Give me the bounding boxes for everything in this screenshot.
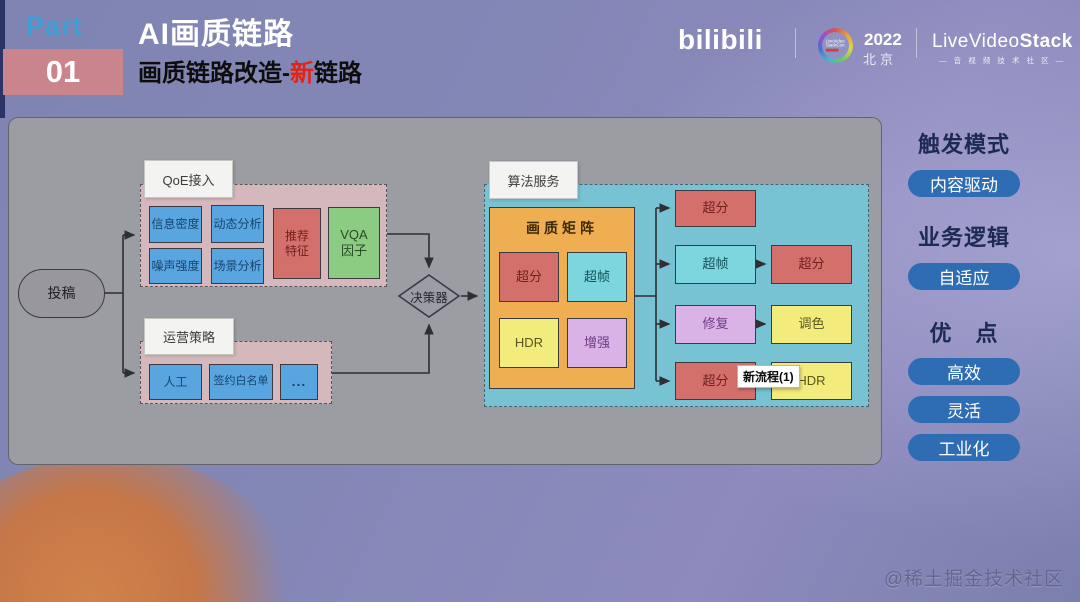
node-more: ...: [280, 364, 318, 400]
flowchart-panel: 投稿 QoE接入 信息密度 动态分析 噪声强度 场景分析 推荐 特征 VQA 因…: [8, 117, 882, 465]
conference-city: 北京: [863, 49, 897, 68]
qoe-group-label: QoE接入: [144, 160, 233, 198]
node-decision: 决策器: [397, 273, 461, 319]
node-whitelist: 签约白名单: [209, 364, 273, 400]
algo-group-label: 算法服务: [489, 161, 578, 199]
page-title: AI画质链路: [138, 9, 294, 53]
matrix-frame-interpolation: 超帧: [567, 252, 627, 302]
badge-inner: LiveVideo StackCon: [822, 32, 849, 59]
pill-efficient: 高效: [908, 358, 1020, 385]
pill-content-driven: 内容驱动: [908, 170, 1020, 197]
bilibili-logo: bilibili: [678, 24, 763, 56]
node-scene-analysis: 场景分析: [211, 248, 264, 284]
pill-adaptive: 自适应: [908, 263, 1020, 290]
sidebar-heading-business-logic: 业务逻辑: [894, 220, 1034, 252]
header-divider: [795, 28, 796, 58]
livevideostack-logo: LiveVideoStack — 音 视 频 技 术 社 区 —: [932, 31, 1073, 66]
new-flow-tooltip: 新流程(1): [737, 365, 800, 388]
subtitle-highlight: 新: [290, 60, 314, 87]
pill-industrialized: 工业化: [908, 434, 1020, 461]
node-vqa-factor: VQA 因子: [328, 207, 380, 279]
ops-group-label: 运营策略: [144, 318, 234, 355]
subtitle-prefix: 画质链路改造-: [138, 60, 290, 87]
right-sidebar: 触发模式 内容驱动 业务逻辑 自适应 优 点 高效 灵活 工业化: [894, 117, 1034, 477]
node-manual: 人工: [149, 364, 202, 400]
part-number-box: 01: [3, 49, 123, 95]
lvs-bold: Stack: [1020, 31, 1073, 52]
node-recommend-feature: 推荐 特征: [273, 208, 321, 279]
matrix-enhance: 增强: [567, 318, 627, 368]
quality-matrix-title: 画质矩阵: [489, 218, 635, 238]
badge-text: LiveVideo StackCon: [826, 39, 845, 51]
pipeline1-super-resolution: 超分: [675, 190, 756, 227]
pill-flexible: 灵活: [908, 396, 1020, 423]
node-noise-strength: 噪声强度: [149, 248, 202, 284]
orange-glow-decoration: [0, 455, 310, 602]
badge-line2: StackCon: [826, 44, 845, 48]
lvs-regular: LiveVideo: [932, 31, 1020, 52]
part-number: 01: [46, 54, 80, 90]
pipeline2-frame-interpolation: 超帧: [675, 245, 756, 284]
sidebar-heading-trigger-mode: 触发模式: [894, 127, 1034, 159]
livevideostackcon-badge-icon: LiveVideo StackCon: [818, 28, 853, 63]
part-label: Part: [26, 11, 83, 42]
node-submission: 投稿: [18, 269, 105, 318]
header-divider: [916, 28, 917, 58]
pipeline2-super-resolution: 超分: [771, 245, 852, 284]
sidebar-heading-advantages: 优 点: [894, 316, 1034, 348]
conference-year: 2022: [864, 30, 902, 50]
livevideostack-wordmark: LiveVideoStack: [932, 31, 1073, 53]
livevideostack-tagline: — 音 视 频 技 术 社 区 —: [932, 55, 1073, 66]
node-motion-analysis: 动态分析: [211, 205, 264, 243]
node-info-density: 信息密度: [149, 206, 202, 243]
pipeline3-color-grading: 调色: [771, 305, 852, 344]
matrix-super-resolution: 超分: [499, 252, 559, 302]
badge-red-bar: [826, 49, 839, 52]
matrix-hdr: HDR: [499, 318, 559, 368]
subtitle-suffix: 链路: [314, 60, 362, 87]
page-subtitle: 画质链路改造-新链路: [138, 53, 362, 88]
watermark: @稀土掘金技术社区: [884, 564, 1064, 591]
pipeline3-restoration: 修复: [675, 305, 756, 344]
